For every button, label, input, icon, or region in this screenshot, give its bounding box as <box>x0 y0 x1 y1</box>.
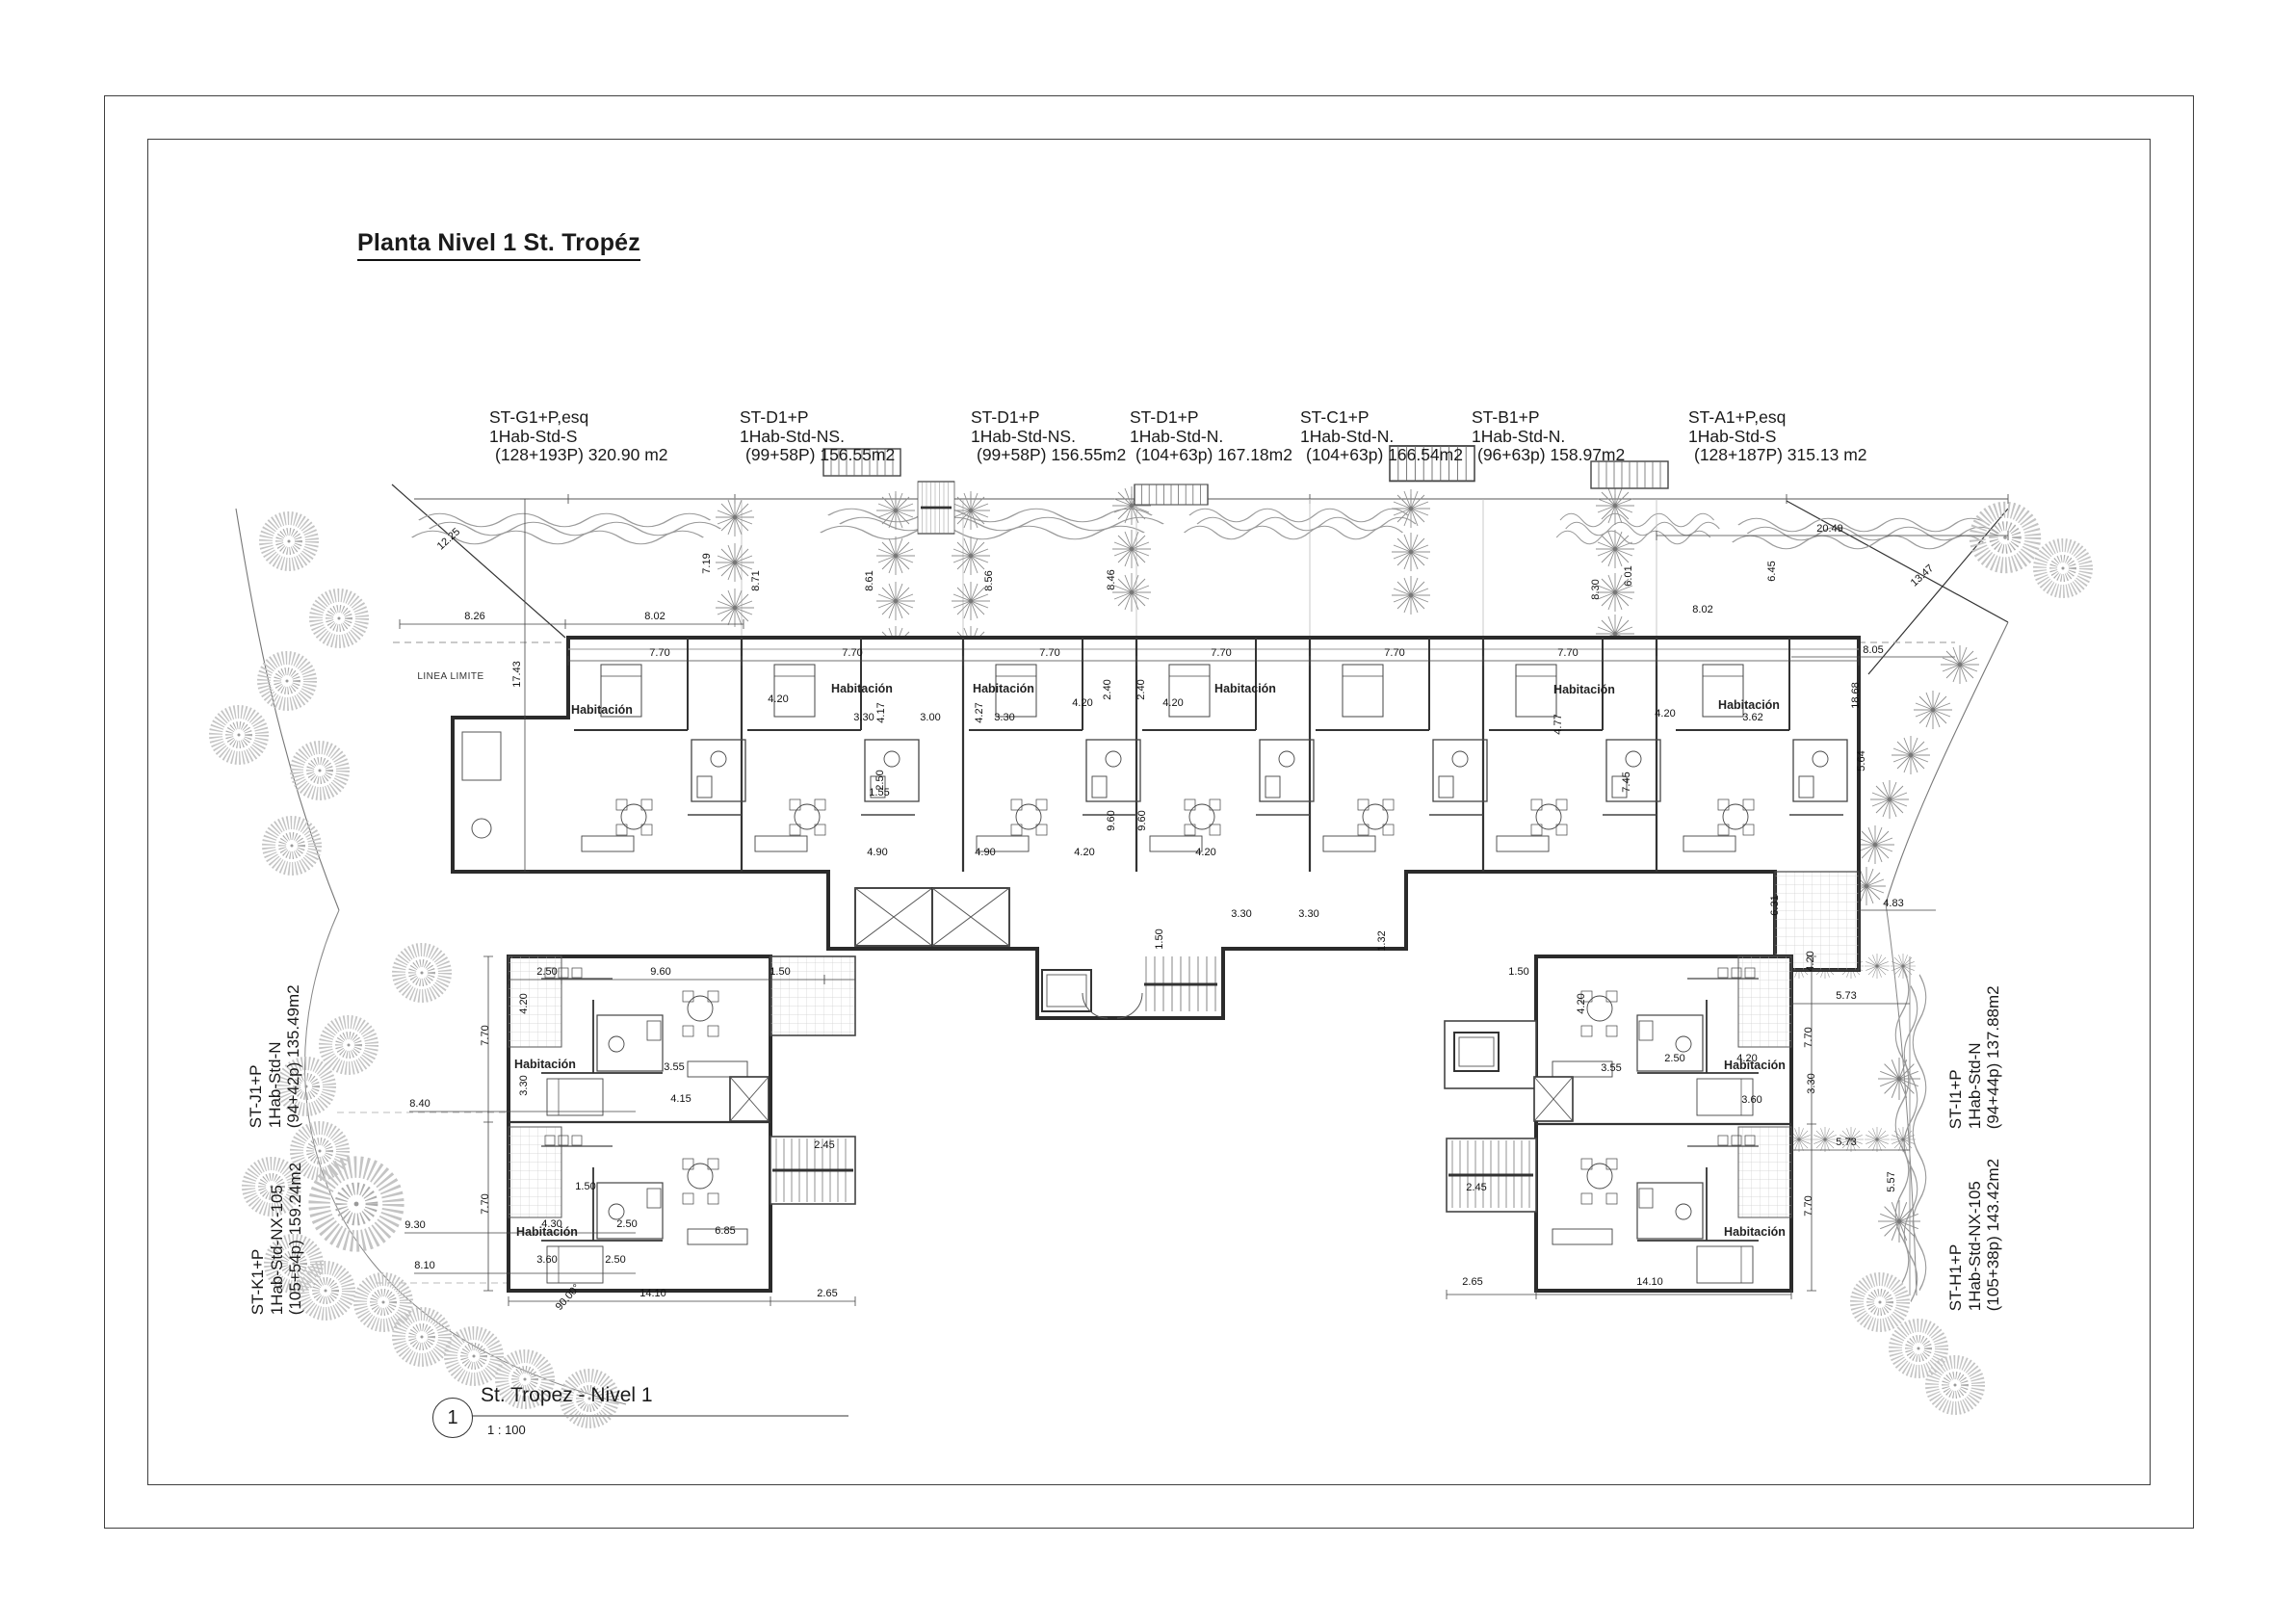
unit-label-st-i1: ST-I1+P 1Hab-Std-N (94+44p) 137.88m2 <box>1946 925 2003 1129</box>
dimension-label: 2.50 <box>605 1254 625 1266</box>
room-label: Habitación <box>1724 1059 1786 1072</box>
dimension-label: 9.60 <box>1106 810 1117 830</box>
unit-type: 1Hab-Std-N <box>265 924 284 1128</box>
dimension-label: 3.30 <box>853 712 874 723</box>
dimension-label: 2.65 <box>1462 1276 1482 1288</box>
dimension-label: 4.27 <box>974 702 985 722</box>
dimension-label: 4.83 <box>1883 898 1903 909</box>
dimension-label: 1.50 <box>1508 966 1528 978</box>
dimension-label: 8.56 <box>983 570 995 590</box>
dimension-label: 4.90 <box>975 847 995 858</box>
dimension-label: 2.50 <box>616 1218 637 1230</box>
dimension-label: 8.05 <box>1863 644 1883 656</box>
dimension-label: 12.25 <box>435 526 462 552</box>
dimension-label: 9.30 <box>404 1219 425 1231</box>
dimension-label: 8.02 <box>644 611 665 622</box>
dimension-label: 14.10 <box>1636 1276 1663 1288</box>
unit-area: (94+44p) 137.88m2 <box>1984 925 2003 1129</box>
dimension-label: 2.45 <box>814 1139 834 1151</box>
dimension-label: 17.43 <box>511 661 523 688</box>
room-label: Habitación <box>1718 698 1780 712</box>
dimension-label: 3.60 <box>1741 1094 1761 1106</box>
unit-model: ST-H1+P <box>1946 1107 1966 1311</box>
dimension-label: 2.45 <box>1466 1182 1486 1193</box>
dimension-label: 14.10 <box>639 1288 666 1299</box>
dimension-label: 5.73 <box>1836 990 1856 1002</box>
unit-area: (105+54p) 159.24m2 <box>286 1111 305 1315</box>
view-name: St. Tropez - Nivel 1 <box>481 1384 653 1407</box>
dimension-label: 4.20 <box>1195 847 1215 858</box>
dimension-label: 4.20 <box>1655 708 1675 719</box>
room-label: Habitación <box>831 682 893 695</box>
dimension-label: 7.70 <box>649 647 669 659</box>
dimension-label: 5.64 <box>1856 750 1867 771</box>
unit-type: 1Hab-Std-NS. <box>740 428 982 447</box>
unit-model: ST-D1+P <box>740 408 982 428</box>
unit-area: (96+63p) 158.97m2 <box>1472 446 1714 465</box>
unit-area: (105+38p) 143.42m2 <box>1984 1107 2003 1311</box>
unit-type: 1Hab-Std-N. <box>1472 428 1714 447</box>
left-wing <box>509 956 855 1291</box>
dimension-label: 8.30 <box>1590 579 1602 599</box>
unit-model: ST-K1+P <box>248 1111 268 1315</box>
unit-label-st-b1: ST-B1+P 1Hab-Std-N. (96+63p) 158.97m2 <box>1472 408 1714 465</box>
dimension-label: 7.70 <box>1803 1027 1814 1047</box>
dimension-label: 2.50 <box>536 966 557 978</box>
room-label: Habitación <box>1214 682 1276 695</box>
right-wing <box>1445 956 1910 1295</box>
dimension-label: 9.60 <box>1136 810 1148 830</box>
dimension-label: 8.61 <box>864 570 875 590</box>
dimension-label: 2.50 <box>874 770 886 790</box>
dimension-label: 3.30 <box>518 1075 530 1095</box>
dimension-label: 2.40 <box>1102 679 1113 699</box>
unit-type: 1Hab-Std-S <box>489 428 732 447</box>
unit-label-st-g1: ST-G1+P,esq 1Hab-Std-S (128+193P) 320.90… <box>489 408 732 465</box>
dimension-label: 3.62 <box>1742 712 1762 723</box>
dimension-label: 7.70 <box>1557 647 1578 659</box>
dimension-label: 3.55 <box>664 1061 684 1073</box>
dimension-label: 4.77 <box>1552 714 1564 734</box>
unit-type: 1Hab-Std-S <box>1688 428 1931 447</box>
dimension-label: 18.68 <box>1850 682 1862 709</box>
dimension-label: 3.60 <box>536 1254 557 1266</box>
unit-area: (94+42p) 135.49m2 <box>284 924 303 1128</box>
view-scale: 1 : 100 <box>487 1423 526 1437</box>
view-title-rule <box>471 1415 848 1417</box>
dimension-label: 3.30 <box>1806 1073 1817 1093</box>
right-wing-stair-core <box>1445 1021 1536 1212</box>
dimension-label: 6.31 <box>1769 895 1781 915</box>
dimension-label: 6.85 <box>715 1225 735 1237</box>
dimension-label: 3.00 <box>920 712 940 723</box>
unit-area: (128+193P) 320.90 m2 <box>489 446 732 465</box>
dimension-label: 4.20 <box>1072 697 1092 709</box>
dimension-label: 5.73 <box>1836 1137 1856 1148</box>
unit-label-st-j1: ST-J1+P 1Hab-Std-N (94+42p) 135.49m2 <box>247 924 303 1128</box>
unit-area: (99+58P) 156.55m2 <box>740 446 982 465</box>
boundary-line-label: LINEA LIMITE <box>417 671 483 682</box>
dimension-label: 2.50 <box>1664 1053 1684 1064</box>
dimension-label: 7.70 <box>1211 647 1231 659</box>
room-label: Habitación <box>973 682 1034 695</box>
dimension-label: 8.26 <box>464 611 484 622</box>
dimension-label: 7.19 <box>701 553 713 573</box>
dimension-label: 3.30 <box>1298 908 1318 920</box>
page-title: Planta Nivel 1 St. Tropéz <box>357 229 640 261</box>
dimension-label: 4.20 <box>1162 697 1183 709</box>
dimension-label: 2.65 <box>817 1288 837 1299</box>
unit-model: ST-J1+P <box>247 924 266 1128</box>
dimension-label: 7.70 <box>480 1025 491 1045</box>
dimension-label: 7.70 <box>1803 1195 1814 1216</box>
dimension-label: 4.15 <box>670 1093 691 1105</box>
unit-model: ST-B1+P <box>1472 408 1714 428</box>
dimension-label: 3.30 <box>994 712 1014 723</box>
room-label: Habitación <box>514 1058 576 1071</box>
dimension-label: 1.32 <box>1376 930 1388 951</box>
dimension-label: 3.55 <box>1601 1062 1621 1074</box>
dimension-label: 20.49 <box>1816 523 1843 535</box>
dimension-label: 8.46 <box>1106 569 1117 589</box>
unit-type: 1Hab-Std-NX-105 <box>1965 1107 1984 1311</box>
unit-type: 1Hab-Std-N <box>1965 925 1984 1129</box>
view-number-marker: 1 <box>432 1398 473 1438</box>
dimension-label: 7.45 <box>1621 772 1632 792</box>
dimension-label: 8.02 <box>1692 604 1712 615</box>
room-label: Habitación <box>1724 1225 1786 1239</box>
dimension-label: 7.70 <box>842 647 862 659</box>
dimension-label: 7.70 <box>1039 647 1059 659</box>
dimension-label: 8.10 <box>414 1260 434 1271</box>
dimension-label: 13.47 <box>1909 562 1936 589</box>
dimension-label: 4.20 <box>768 693 788 705</box>
dimension-label: 4.17 <box>875 702 887 722</box>
dimension-label: 2.40 <box>1135 679 1147 699</box>
unit-model: ST-A1+P,esq <box>1688 408 1931 428</box>
dimension-label: 4.20 <box>1576 993 1587 1013</box>
dimension-label: 6.45 <box>1766 561 1778 581</box>
dimension-label: 1.50 <box>1154 929 1165 949</box>
dimension-label: 1.50 <box>770 966 790 978</box>
drawing-sheet: 8.26 8.02 17.43 12.25 7.19 8.71 8.61 8.5… <box>0 0 2296 1622</box>
dimension-label: 4.20 <box>518 993 530 1013</box>
unit-model: ST-I1+P <box>1946 925 1966 1129</box>
dimension-label: 8.71 <box>750 570 762 590</box>
room-label: Habitación <box>516 1225 578 1239</box>
dimension-label: 5.57 <box>1886 1171 1897 1191</box>
dimension-label: 4.20 <box>1074 847 1094 858</box>
unit-model: ST-G1+P,esq <box>489 408 732 428</box>
dimension-label: 8.40 <box>409 1098 430 1110</box>
unit-type: 1Hab-Std-NX-105 <box>267 1111 286 1315</box>
dimension-label: 6.01 <box>1623 565 1634 586</box>
room-label: Habitación <box>1553 683 1615 696</box>
dimension-label: 3.30 <box>1231 908 1251 920</box>
dimension-label: 4.90 <box>867 847 887 858</box>
dimension-label: 1.50 <box>575 1181 595 1192</box>
dimension-label: 4.20 <box>1805 951 1816 971</box>
room-label: Habitación <box>571 703 633 717</box>
dimension-label: 7.70 <box>1384 647 1404 659</box>
unit-label-st-d1-a: ST-D1+P 1Hab-Std-NS. (99+58P) 156.55m2 <box>740 408 982 465</box>
unit-label-st-a1: ST-A1+P,esq 1Hab-Std-S (128+187P) 315.13… <box>1688 408 1931 465</box>
unit-label-st-h1: ST-H1+P 1Hab-Std-NX-105 (105+38p) 143.42… <box>1946 1107 2003 1311</box>
floor-plan-drawing: 8.26 8.02 17.43 12.25 7.19 8.71 8.61 8.5… <box>0 0 2296 1622</box>
dimension-label: 7.70 <box>480 1193 491 1214</box>
unit-label-st-k1: ST-K1+P 1Hab-Std-NX-105 (105+54p) 159.24… <box>248 1111 305 1315</box>
dimension-label: 9.60 <box>650 966 670 978</box>
unit-area: (128+187P) 315.13 m2 <box>1688 446 1931 465</box>
